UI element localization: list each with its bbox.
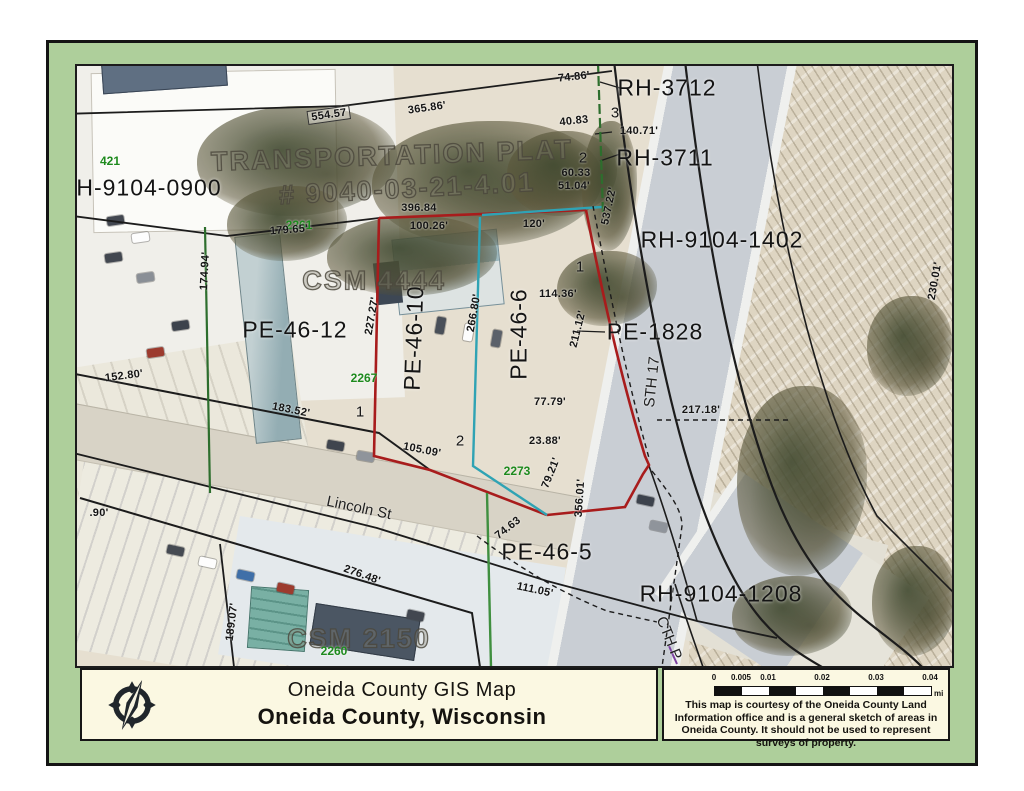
lot-number: 3 [611, 105, 619, 122]
parcel-label: PE-46-12 [242, 317, 347, 344]
map-title-panel: Oneida County GIS Map Oneida County, Wis… [80, 668, 658, 741]
parcel-label: PE-46-5 [501, 539, 592, 566]
map-canvas: RH-3712RH-3711RH-9104-1402PE-1828PE-46-1… [75, 64, 954, 668]
map-title: Oneida County GIS Map [182, 679, 622, 702]
scale-tick: 0 [712, 673, 716, 682]
scale-bar [714, 686, 932, 696]
scale-tick-labels: 00.0050.010.020.030.04 [714, 673, 930, 683]
measurement-label: .90' [89, 507, 108, 519]
map-titles: Oneida County GIS Map Oneida County, Wis… [182, 679, 656, 730]
compass-rose-logo [105, 674, 159, 736]
scale-bar-segment [796, 687, 823, 695]
measurement-label: 396.84 [401, 202, 436, 214]
highway-lane-line-east [685, 66, 922, 666]
green-boundary-south [487, 493, 491, 666]
green-map-frame: RH-3712RH-3711RH-9104-1402PE-1828PE-46-1… [46, 40, 978, 766]
lot-number: 1 [576, 259, 584, 276]
red-parcel-east [547, 210, 649, 515]
lot-number: 2 [579, 150, 587, 167]
lincoln-south-edge [77, 451, 777, 638]
parcel-label: RH-9104-1402 [641, 227, 804, 254]
parcel-label: H-9104-0900 [76, 175, 221, 202]
highway-east-edge [757, 66, 952, 596]
address-label: 2267 [351, 371, 378, 385]
parcel-label: RH-3712 [617, 75, 716, 102]
measurement-label: 140.71' [620, 125, 658, 137]
scale-bar-segment [742, 687, 769, 695]
scale-tick: 0.02 [814, 673, 830, 682]
lincoln-north-frontage [77, 372, 430, 470]
parcel-label: PE-1828 [607, 319, 704, 346]
scale-bar-segment [823, 687, 850, 695]
map-subtitle: Oneida County, Wisconsin [182, 704, 622, 730]
logo-wrap [82, 674, 182, 736]
measurement-label: 60.33 [561, 167, 590, 179]
measurement-label: 51.04' [558, 180, 590, 192]
scale-bar-segment [769, 687, 796, 695]
address-label: 421 [100, 154, 120, 168]
survey-label: CSM 2150 [287, 624, 431, 655]
parcel-label: RH-3711 [616, 145, 713, 172]
scale-bar-segment [877, 687, 904, 695]
parcel-label: PE-46-10 [399, 285, 430, 391]
green-treeline-north [598, 66, 603, 214]
scale-bar-segment [850, 687, 877, 695]
parcel-north-line [77, 215, 379, 236]
measurement-label: 77.79' [534, 396, 566, 408]
scale-tick: 0.04 [922, 673, 938, 682]
measurement-label: 174.94' [198, 252, 212, 291]
scale-unit: mi [934, 689, 943, 698]
address-label: 2273 [504, 464, 531, 478]
scale-tick: 0.03 [868, 673, 884, 682]
map-info-panel: 00.0050.010.020.030.04 mi This map is co… [662, 668, 950, 741]
scale-tick: 0.01 [760, 673, 776, 682]
measurement-label: 217.18' [682, 404, 720, 416]
survey-label: CSM 4444 [302, 266, 446, 297]
lot-number: 2 [456, 433, 464, 450]
scale-bar-segment [904, 687, 931, 695]
measurement-label: 120' [523, 218, 545, 230]
lot-number: 1 [356, 404, 364, 421]
measurement-label: 23.88' [529, 435, 561, 447]
parcel-label: PE-46-6 [506, 288, 533, 379]
disclaimer-text: This map is courtesy of the Oneida Count… [672, 699, 940, 749]
scale-bar-segment [715, 687, 742, 695]
measurement-label: 100.26' [410, 220, 448, 232]
parcel-label: RH-9104-1208 [640, 581, 803, 608]
measurement-label: 114.36' [539, 288, 577, 300]
address-label: 2260 [321, 644, 348, 658]
scale-tick: 0.005 [731, 673, 751, 682]
